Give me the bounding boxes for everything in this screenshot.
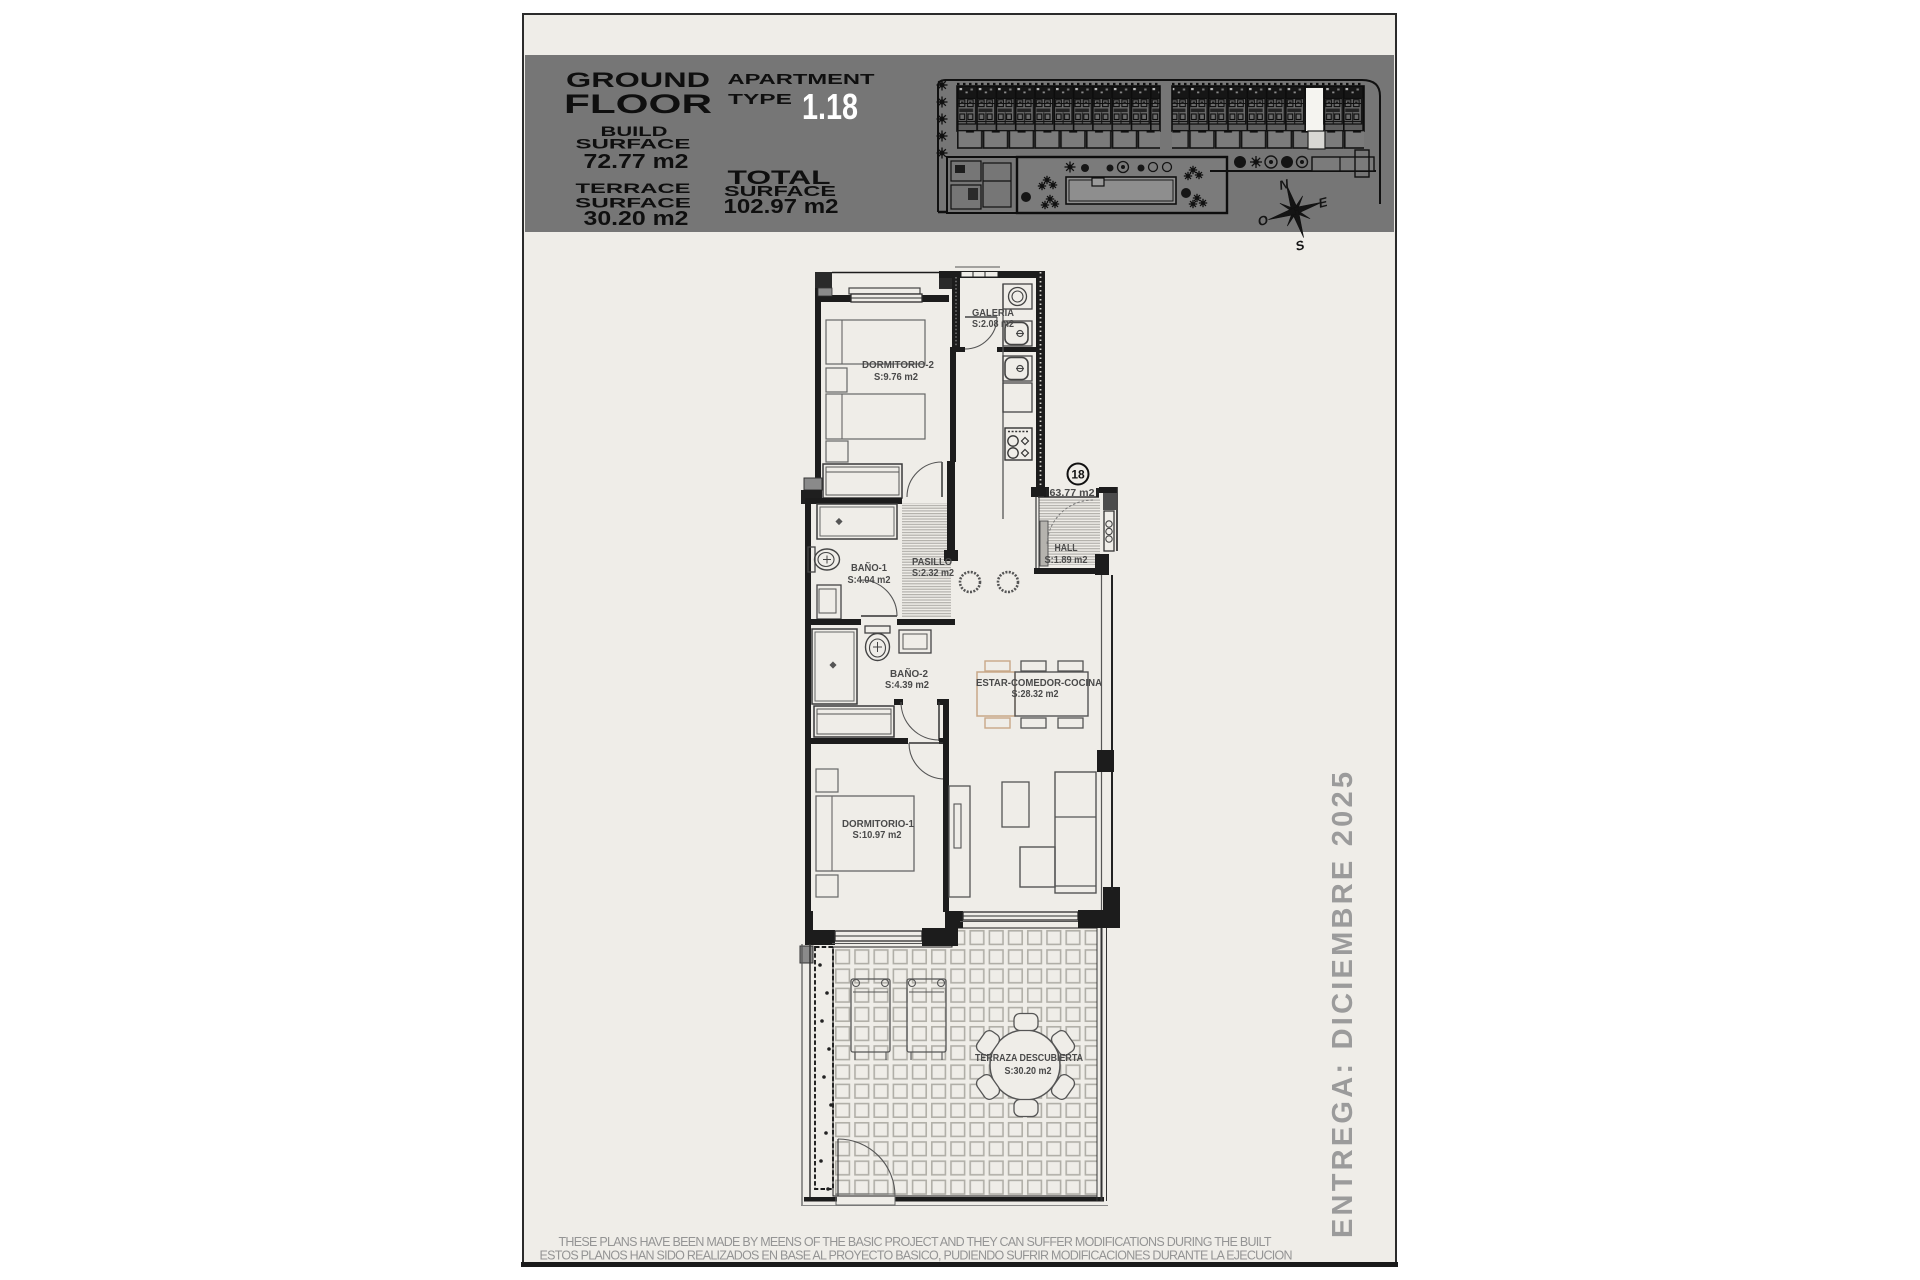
svg-text:DORMITORIO-1: DORMITORIO-1 — [842, 818, 914, 830]
svg-text:30.20 m2: 30.20 m2 — [584, 208, 689, 230]
svg-text:72.77 m2: 72.77 m2 — [584, 151, 689, 173]
svg-text:S:10.97 m2: S:10.97 m2 — [853, 830, 902, 841]
svg-text:S:2.32 m2: S:2.32 m2 — [912, 568, 954, 579]
svg-text:S:28.32 m2: S:28.32 m2 — [1012, 689, 1059, 700]
svg-text:1.18: 1.18 — [802, 86, 858, 127]
svg-text:S:4.39 m2: S:4.39 m2 — [885, 680, 929, 691]
svg-text:S:30.20 m2: S:30.20 m2 — [1005, 1066, 1052, 1077]
svg-text:FLOOR: FLOOR — [564, 89, 712, 119]
svg-text:PASILLO: PASILLO — [912, 557, 952, 568]
svg-text:ENTREGA: DICIEMBRE 2025: ENTREGA: DICIEMBRE 2025 — [1327, 772, 1359, 1238]
svg-text:THESE PLANS HAVE BEEN MADE BY: THESE PLANS HAVE BEEN MADE BY MEENS OF T… — [559, 1235, 1272, 1249]
svg-text:102.97 m2: 102.97 m2 — [724, 196, 839, 218]
svg-text:TYPE: TYPE — [728, 91, 792, 108]
svg-text:63.77 m2: 63.77 m2 — [1050, 487, 1095, 499]
svg-text:ESTOS PLANOS HAN SIDO REALIZAD: ESTOS PLANOS HAN SIDO REALIZADOS EN BASE… — [540, 1249, 1293, 1263]
svg-text:HALL: HALL — [1055, 543, 1078, 554]
svg-text:S:4.04 m2: S:4.04 m2 — [848, 575, 891, 586]
svg-text:S:2.08 m2: S:2.08 m2 — [972, 319, 1014, 330]
svg-text:TERRAZA DESCUBIERTA: TERRAZA DESCUBIERTA — [975, 1052, 1083, 1064]
svg-text:DORMITORIO-2: DORMITORIO-2 — [862, 359, 934, 371]
svg-text:S:1.89 m2: S:1.89 m2 — [1045, 555, 1088, 566]
svg-text:BAÑO-1: BAÑO-1 — [851, 561, 887, 574]
svg-text:18: 18 — [1071, 468, 1085, 482]
svg-text:S:9.76 m2: S:9.76 m2 — [874, 372, 918, 383]
svg-text:ESTAR-COMEDOR-COCINA: ESTAR-COMEDOR-COCINA — [976, 677, 1102, 689]
svg-text:BAÑO-2: BAÑO-2 — [890, 667, 928, 680]
svg-text:SURFACE: SURFACE — [576, 136, 691, 152]
svg-text:GALERIA: GALERIA — [972, 308, 1014, 319]
